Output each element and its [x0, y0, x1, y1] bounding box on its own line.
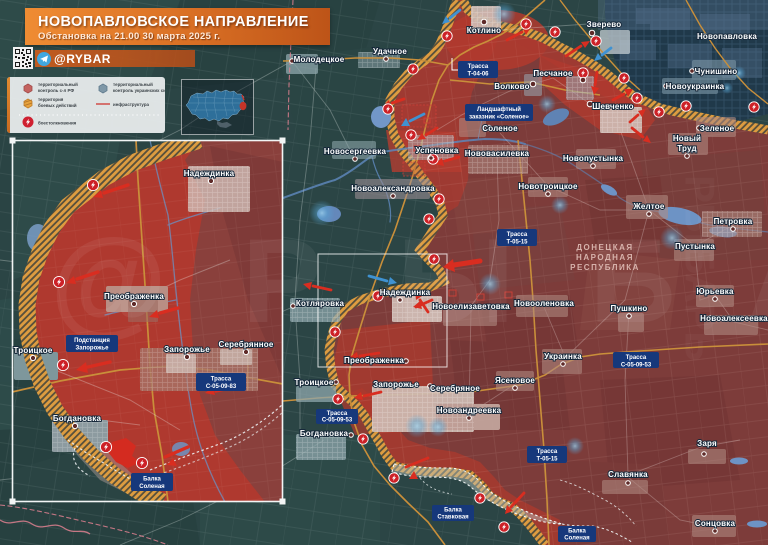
svg-text:Новопустынка: Новопустынка [563, 154, 624, 163]
svg-text:С-05-09-53: С-05-09-53 [322, 418, 353, 424]
svg-text:НАРОДНАЯ: НАРОДНАЯ [576, 253, 634, 262]
svg-text:Соленая: Соленая [564, 536, 590, 542]
svg-text:С-05-09-53: С-05-09-53 [621, 363, 652, 369]
svg-text:Т-05-15: Т-05-15 [506, 240, 528, 246]
svg-text:Новосергеевка: Новосергеевка [324, 147, 387, 156]
svg-text:@РЫБАРЬ: @РЫБАРЬ [50, 214, 768, 348]
svg-text:Новоукраинка: Новоукраинка [666, 82, 725, 91]
svg-text:Новопавловка: Новопавловка [697, 32, 757, 41]
svg-text:Труд: Труд [677, 144, 697, 153]
svg-text:Ландшафтный: Ландшафтный [477, 106, 521, 113]
svg-text:Преображенка: Преображенка [104, 292, 164, 301]
svg-text:Подстанция: Подстанция [74, 338, 110, 344]
svg-text:территория: территория [38, 97, 64, 102]
svg-text:боестолкновения: боестолкновения [38, 121, 77, 126]
svg-text:Троицкое: Троицкое [294, 378, 333, 387]
svg-text:Шевченко: Шевченко [592, 102, 633, 111]
svg-text:боевых действий: боевых действий [38, 103, 77, 108]
svg-text:Удачное: Удачное [373, 47, 407, 56]
svg-text:Песчаное: Песчаное [533, 69, 573, 78]
svg-text:Желтое: Желтое [632, 202, 664, 211]
svg-text:Т-05-15: Т-05-15 [536, 457, 558, 463]
svg-text:ДОНЕЦКАЯ: ДОНЕЦКАЯ [576, 243, 633, 252]
svg-text:РЕСПУБЛИКА: РЕСПУБЛИКА [570, 263, 640, 272]
svg-text:Новый: Новый [673, 134, 701, 143]
svg-text:Котляровка: Котляровка [296, 299, 345, 308]
svg-text:Запорожье: Запорожье [373, 380, 419, 389]
svg-text:Пушкино: Пушкино [611, 304, 648, 313]
svg-text:Серебрянное: Серебрянное [218, 340, 273, 349]
svg-text:Зверево: Зверево [587, 20, 622, 29]
svg-text:Новоалександровка: Новоалександровка [351, 184, 435, 193]
svg-text:Надеждинка: Надеждинка [380, 288, 431, 297]
svg-text:Чунишино: Чунишино [695, 67, 738, 76]
svg-text:Запорожье: Запорожье [164, 345, 210, 354]
svg-text:Славянка: Славянка [608, 470, 648, 479]
svg-text:Трасса: Трасса [507, 232, 528, 238]
svg-text:Трасса: Трасса [327, 411, 348, 417]
svg-text:Новоелизаветовка: Новоелизаветовка [432, 302, 510, 311]
svg-text:РЫБАРЬ: РЫБАРЬ [677, 175, 724, 361]
svg-text:Трасса: Трасса [626, 355, 647, 361]
svg-text:заказник «Соленое»: заказник «Соленое» [469, 115, 529, 121]
svg-text:Заря: Заря [697, 439, 717, 448]
svg-text:контроль с-л РФ: контроль с-л РФ [38, 88, 74, 93]
svg-text:Ставковая: Ставковая [437, 515, 469, 521]
svg-text:Преображенка: Преображенка [344, 356, 404, 365]
svg-text:территориальный: территориальный [113, 82, 153, 87]
svg-text:Новооленовка: Новооленовка [514, 299, 574, 308]
svg-text:Зеленое: Зеленое [700, 124, 735, 133]
svg-text:инфраструктура: инфраструктура [113, 102, 149, 107]
svg-text:С-05-09-83: С-05-09-83 [206, 384, 237, 390]
svg-text:Нововасилевка: Нововасилевка [465, 149, 530, 158]
svg-text:Богдановка: Богдановка [300, 429, 349, 438]
svg-text:Молодецкое: Молодецкое [294, 55, 345, 64]
svg-text:Новоандреевка: Новоандреевка [437, 406, 502, 415]
svg-text:Пустынка: Пустынка [675, 242, 715, 251]
svg-text:Котлино: Котлино [467, 26, 502, 35]
svg-text:Трасса: Трасса [537, 449, 558, 455]
svg-text:Трасса: Трасса [468, 64, 489, 70]
svg-text:Успеновка: Успеновка [415, 146, 458, 155]
svg-text:Соленая: Соленая [139, 484, 165, 490]
svg-text:Новотроицкое: Новотроицкое [518, 182, 578, 191]
svg-text:Сонцовка: Сонцовка [695, 519, 736, 528]
svg-text:Запорожье: Запорожье [76, 346, 110, 352]
svg-text:Серебряное: Серебряное [430, 384, 480, 393]
svg-text:Троицкое: Троицкое [13, 346, 52, 355]
svg-text:Петровка: Петровка [714, 217, 753, 226]
svg-text:Соленое: Соленое [482, 124, 518, 133]
svg-text:Балка: Балка [444, 508, 462, 514]
svg-text:Новоалексеевка: Новоалексеевка [700, 314, 768, 323]
svg-text:Ясеновое: Ясеновое [495, 376, 535, 385]
svg-text:Трасса: Трасса [211, 377, 232, 383]
svg-text:Балка: Балка [568, 529, 586, 535]
svg-text:Волково: Волково [494, 82, 529, 91]
svg-text:Украинка: Украинка [544, 352, 582, 361]
svg-text:Балка: Балка [143, 477, 161, 483]
svg-text:Юрьевка: Юрьевка [696, 287, 734, 296]
svg-text:Богдановка: Богдановка [53, 414, 102, 423]
svg-text:Т-04-06: Т-04-06 [467, 72, 489, 78]
svg-text:территориальный: территориальный [38, 82, 78, 87]
svg-text:контроль украинских сил: контроль украинских сил [113, 88, 165, 93]
svg-text:Надеждинка: Надеждинка [184, 169, 235, 178]
